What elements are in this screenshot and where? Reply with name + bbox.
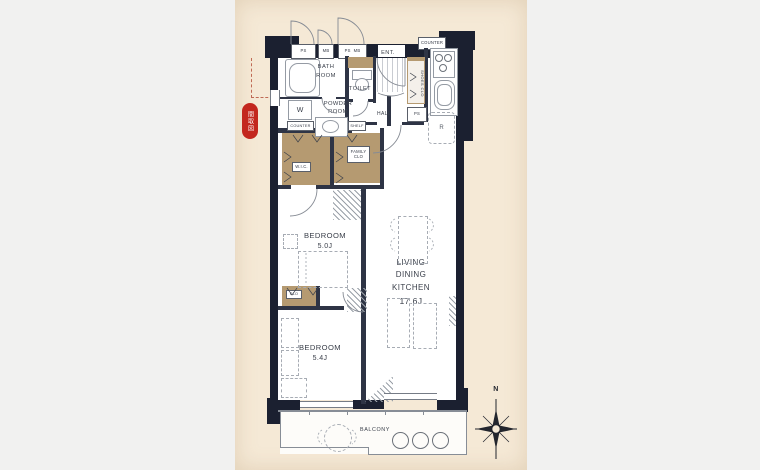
closet-fold-doors	[284, 73, 416, 295]
floorplan-photo: 間取図 PS MB PSMB COUNTER W	[235, 0, 527, 470]
compass-north-label: N	[473, 386, 519, 393]
compass: N	[473, 386, 519, 464]
door-arcs	[290, 18, 405, 312]
compass-rose-icon	[473, 397, 519, 463]
screenshot-canvas: { "colors":{"canvas_bg":"#f1f1f0","photo…	[0, 0, 760, 470]
chair-outlines	[306, 219, 433, 444]
